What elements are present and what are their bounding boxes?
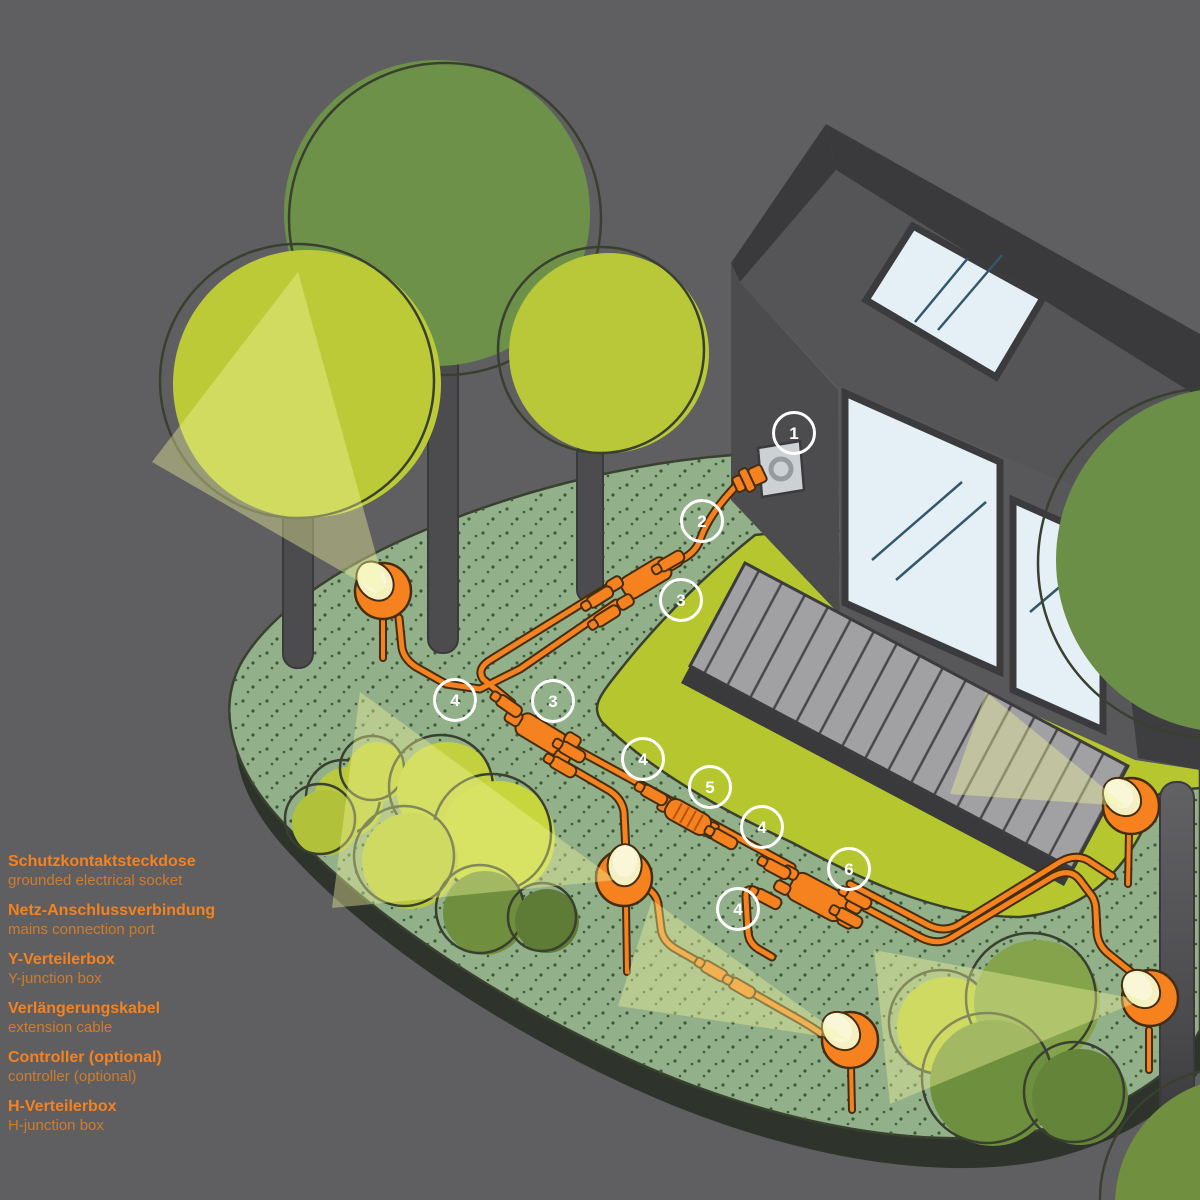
svg-text:3: 3	[548, 692, 557, 711]
legend: Schutzkontaktsteckdose grounded electric…	[8, 852, 278, 1146]
svg-text:5: 5	[705, 778, 714, 797]
legend-term-en: controller (optional)	[8, 1067, 278, 1086]
svg-text:4: 4	[733, 900, 743, 919]
legend-item-socket: Schutzkontaktsteckdose grounded electric…	[8, 852, 278, 890]
garden-lighting-diagram: 1 2 3 4 3 4 5 4 6 4 Schutzkontaktsteckdo…	[0, 0, 1200, 1200]
svg-text:2: 2	[697, 512, 706, 531]
svg-text:3: 3	[676, 591, 685, 610]
legend-term-en: Y-junction box	[8, 969, 278, 988]
legend-item-mains-port: Netz-Anschlussverbindung mains connectio…	[8, 901, 278, 939]
legend-item-y-junction: Y-Verteilerbox Y-junction box	[8, 950, 278, 988]
svg-text:1: 1	[789, 424, 798, 443]
svg-text:4: 4	[757, 818, 767, 837]
legend-item-controller: Controller (optional) controller (option…	[8, 1048, 278, 1086]
legend-term-de: Y-Verteilerbox	[8, 950, 278, 969]
legend-term-de: H-Verteilerbox	[8, 1097, 278, 1116]
legend-term-en: mains connection port	[8, 920, 278, 939]
legend-term-de: Schutzkontaktsteckdose	[8, 852, 278, 871]
legend-term-en: H-junction box	[8, 1116, 278, 1135]
svg-text:4: 4	[638, 750, 648, 769]
legend-term-de: Netz-Anschlussverbindung	[8, 901, 278, 920]
svg-text:4: 4	[450, 691, 460, 710]
svg-text:6: 6	[844, 860, 853, 879]
legend-term-en: extension cable	[8, 1018, 278, 1037]
legend-term-de: Verlängerungskabel	[8, 999, 278, 1018]
legend-item-extension-cable: Verlängerungskabel extension cable	[8, 999, 278, 1037]
legend-item-h-junction: H-Verteilerbox H-junction box	[8, 1097, 278, 1135]
legend-term-de: Controller (optional)	[8, 1048, 278, 1067]
tree-trunk	[577, 442, 603, 602]
legend-term-en: grounded electrical socket	[8, 871, 278, 890]
